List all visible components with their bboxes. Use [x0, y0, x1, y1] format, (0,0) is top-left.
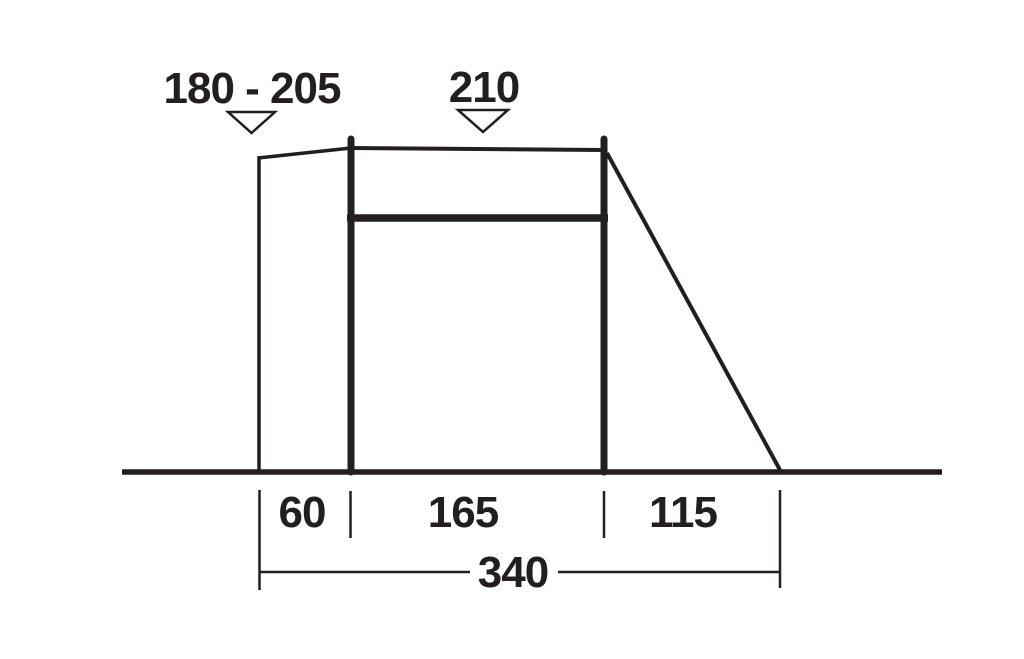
height-range-label: 180 - 205	[164, 64, 341, 113]
total-width-label: 340	[478, 548, 548, 597]
roof-line	[351, 148, 604, 150]
peak-height-label: 210	[449, 63, 519, 112]
rear-slope-line	[607, 153, 780, 470]
triangle-down-icon	[458, 110, 508, 132]
diagram-canvas: 180 - 205 210 60 165 115 340	[0, 0, 1024, 659]
segment-width-label-2: 165	[428, 488, 499, 537]
tent-dimension-diagram: 180 - 205 210 60 165 115 340	[0, 0, 1024, 659]
tent-outline	[122, 139, 942, 472]
triangle-down-icon	[228, 112, 275, 133]
segment-width-label-1: 60	[279, 488, 326, 537]
segment-width-label-3: 115	[649, 488, 718, 537]
roof-slant-line	[258, 148, 351, 158]
